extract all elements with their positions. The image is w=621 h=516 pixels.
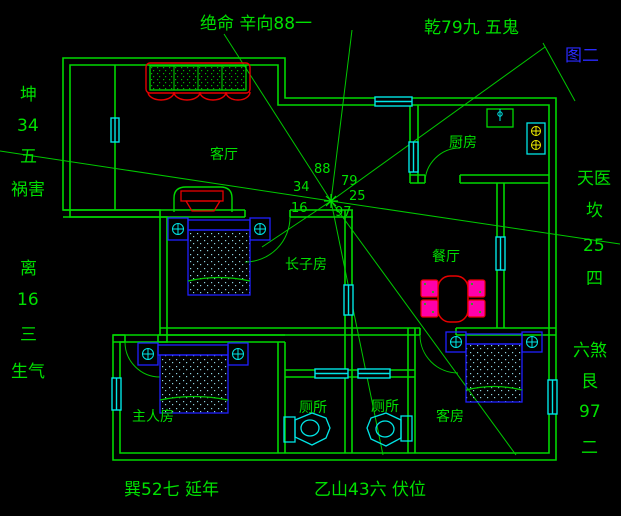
window-toilet-right-top [358,369,390,378]
label-top-left: 绝命 辛向88一 [200,14,312,34]
ray-west [0,151,331,201]
room-label-guest: 客房 [436,408,464,425]
figure-number-label: 图二 [565,46,599,66]
chair [468,300,485,317]
label-east-4: 四 [586,269,603,289]
wall-kitchen-bottom [410,175,549,183]
label-bottom-center: 乙山43六 伏位 [314,480,426,500]
compass-number-top-right: 79 [341,174,358,189]
room-label-dining: 餐厅 [432,249,460,265]
chair [468,280,485,297]
window-guest-right [548,380,557,414]
chair [421,300,438,317]
room-label-eldest-son: 长子房 [285,257,327,273]
compass-number-right: 25 [349,189,366,204]
window-toilet-left-top [315,369,348,378]
window-living-partition [111,118,119,142]
door-arc-kitchen [425,148,460,183]
floorplan-drawing: 88 79 34 25 16 97 客厅 厨房 餐厅 长子房 主人房 厕所 厕所… [0,0,621,516]
room-label-kitchen: 厨房 [449,135,477,151]
bed-master [138,343,248,413]
wall-master-top [113,335,285,342]
compass-number-group: 88 79 34 25 16 97 [291,162,366,220]
ray-east [331,201,620,244]
label-east-1: 天医 [577,169,611,189]
dining-table [438,276,468,322]
label-east-2: 坎 [586,201,603,221]
stove-icon [527,123,545,154]
room-label-toilet-left: 厕所 [299,400,327,416]
window-master-left [112,378,121,410]
compass-number-top: 88 [314,162,331,177]
label-southwest-4: 生气 [11,362,45,382]
label-southeast-4: 二 [581,438,598,458]
label-southwest-2: 16 [17,290,39,310]
label-west-2: 34 [17,116,39,136]
toilet-left-icon [284,413,330,445]
compass-number-left: 16 [291,201,308,216]
floorplan-canvas: 88 79 34 25 16 97 客厅 厨房 餐厅 长子房 主人房 厕所 厕所… [0,0,621,516]
window-top-wall [375,97,412,106]
window-eldestson-right [344,285,353,315]
chair [421,280,438,297]
label-top-right: 乾79九 五鬼 [424,18,519,38]
room-label-master: 主人房 [132,409,174,425]
wall-toilet-divider [345,335,352,453]
sink-icon [487,109,513,127]
room-label-toilet-right: 厕所 [371,399,399,415]
bed-guest [446,332,542,402]
label-west-4: 祸害 [11,180,45,200]
door-arc-master [125,342,160,377]
bed-eldest-son [168,218,270,295]
dining-set [421,276,485,322]
compass-number-top-left: 34 [293,180,310,195]
label-southwest-3: 三 [20,325,37,345]
label-southwest-1: 离 [20,259,37,279]
label-bottom-left: 巽52七 延年 [124,480,219,500]
label-west-3: 五 [20,147,37,167]
label-east-3: 25 [583,236,605,256]
label-southeast-1: 六煞 [573,341,607,361]
compass-rays [0,30,620,455]
window-kitchen-left [409,142,418,172]
tv-cabinet [174,187,232,212]
room-label-living: 客厅 [210,146,238,163]
compass-number-bottom: 97 [335,205,352,220]
wall-toilets-top [285,370,415,377]
toilet-right-icon [367,413,412,446]
window-dining-right [496,237,505,270]
label-southeast-3: 97 [579,402,601,422]
label-southeast-2: 艮 [581,372,598,392]
label-west-1: 坤 [20,85,37,105]
sofa [146,63,250,100]
